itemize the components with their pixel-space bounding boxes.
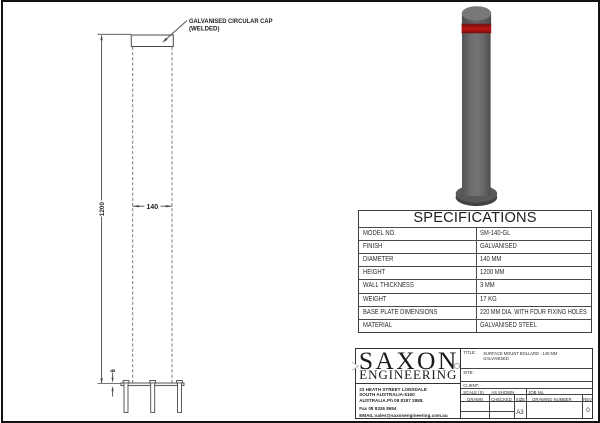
svg-text:140: 140 <box>146 204 158 211</box>
svg-text:6: 6 <box>111 369 117 373</box>
svg-text:(WELDED): (WELDED) <box>189 25 220 32</box>
svg-text:GALVANISED CIRCULAR CAP: GALVANISED CIRCULAR CAP <box>189 18 273 25</box>
svg-text:1200: 1200 <box>99 202 106 217</box>
